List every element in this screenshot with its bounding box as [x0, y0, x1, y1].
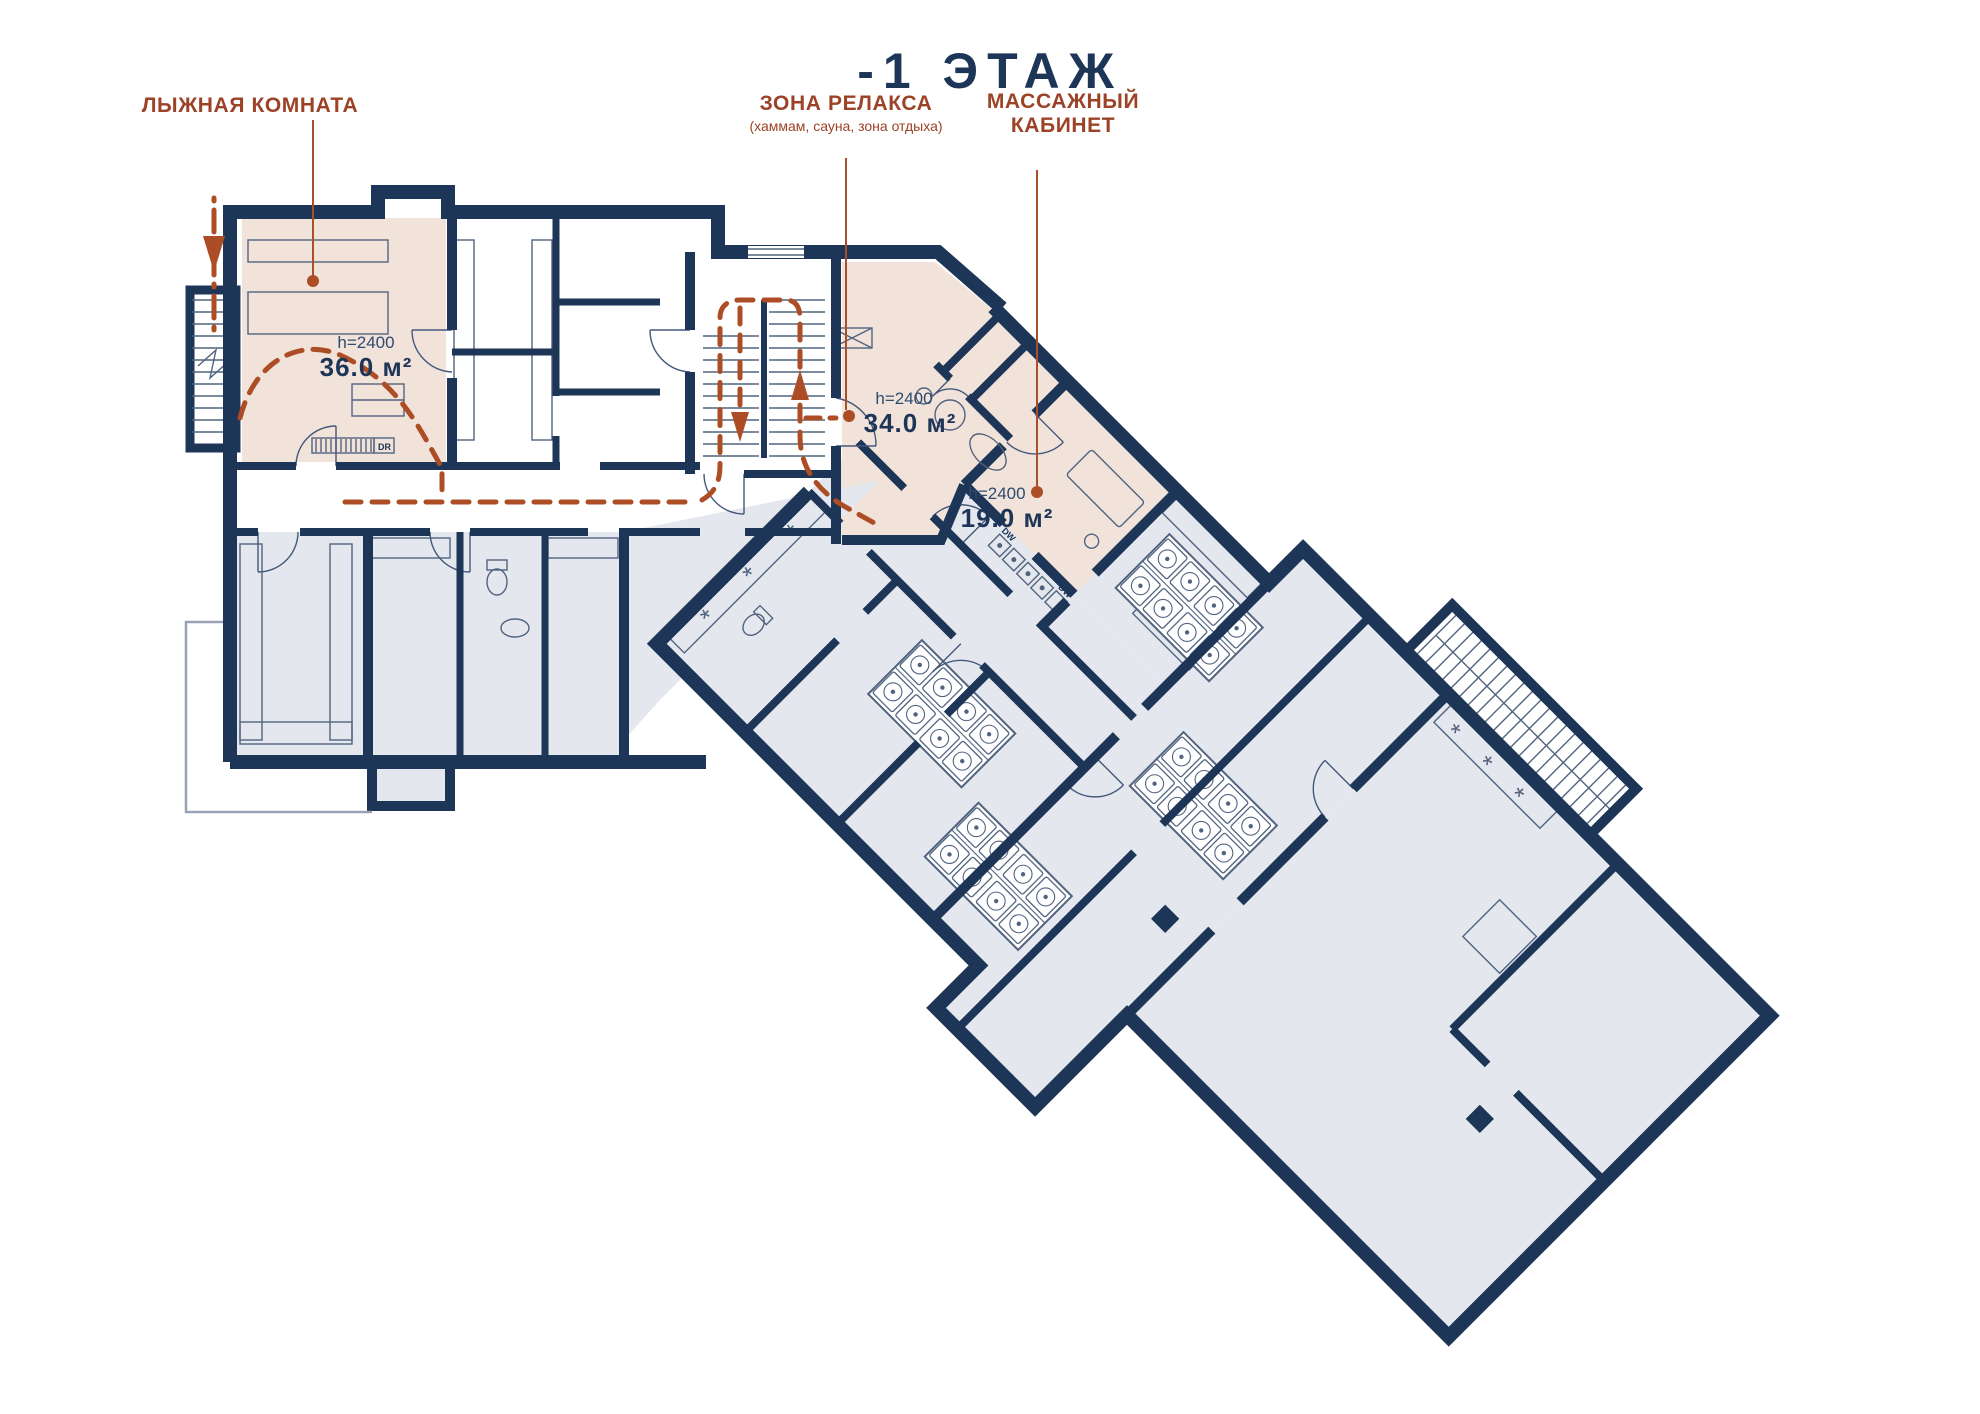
ski-room-area-value: 36.0 м² [320, 352, 413, 382]
leader-dot [307, 275, 319, 287]
window [748, 246, 804, 258]
relax-zone-height: h=2400 [875, 389, 932, 408]
massage-room-height: h=2400 [968, 484, 1025, 503]
route-arrow-down-icon [203, 236, 225, 272]
massage-room-area-value: 19.0 м² [961, 503, 1054, 533]
leader-dot [1031, 486, 1043, 498]
leader-dot [843, 410, 855, 422]
corridor-area [236, 462, 700, 536]
massage-room-label-2: КАБИНЕТ [1011, 114, 1115, 137]
massage-room-label-1: МАССАЖНЫЙ [987, 89, 1139, 113]
relax-zone-label: ЗОНА РЕЛАКСА [760, 92, 933, 115]
ski-room-label: ЛЫЖНАЯ КОМНАТА [142, 94, 359, 117]
floor-plan-page: * * * * * * M M DW DW [0, 0, 1980, 1414]
relax-zone-sublabel: (хаммам, сауна, зона отдыха) [749, 118, 942, 134]
ski-room-height: h=2400 [337, 333, 394, 352]
dryer-label: DR [378, 442, 391, 452]
relax-zone-area-value: 34.0 м² [864, 408, 957, 438]
storage-rooms-area [236, 532, 624, 766]
floor-plan-drawing: * * * * * * M M DW DW [0, 0, 1980, 1414]
